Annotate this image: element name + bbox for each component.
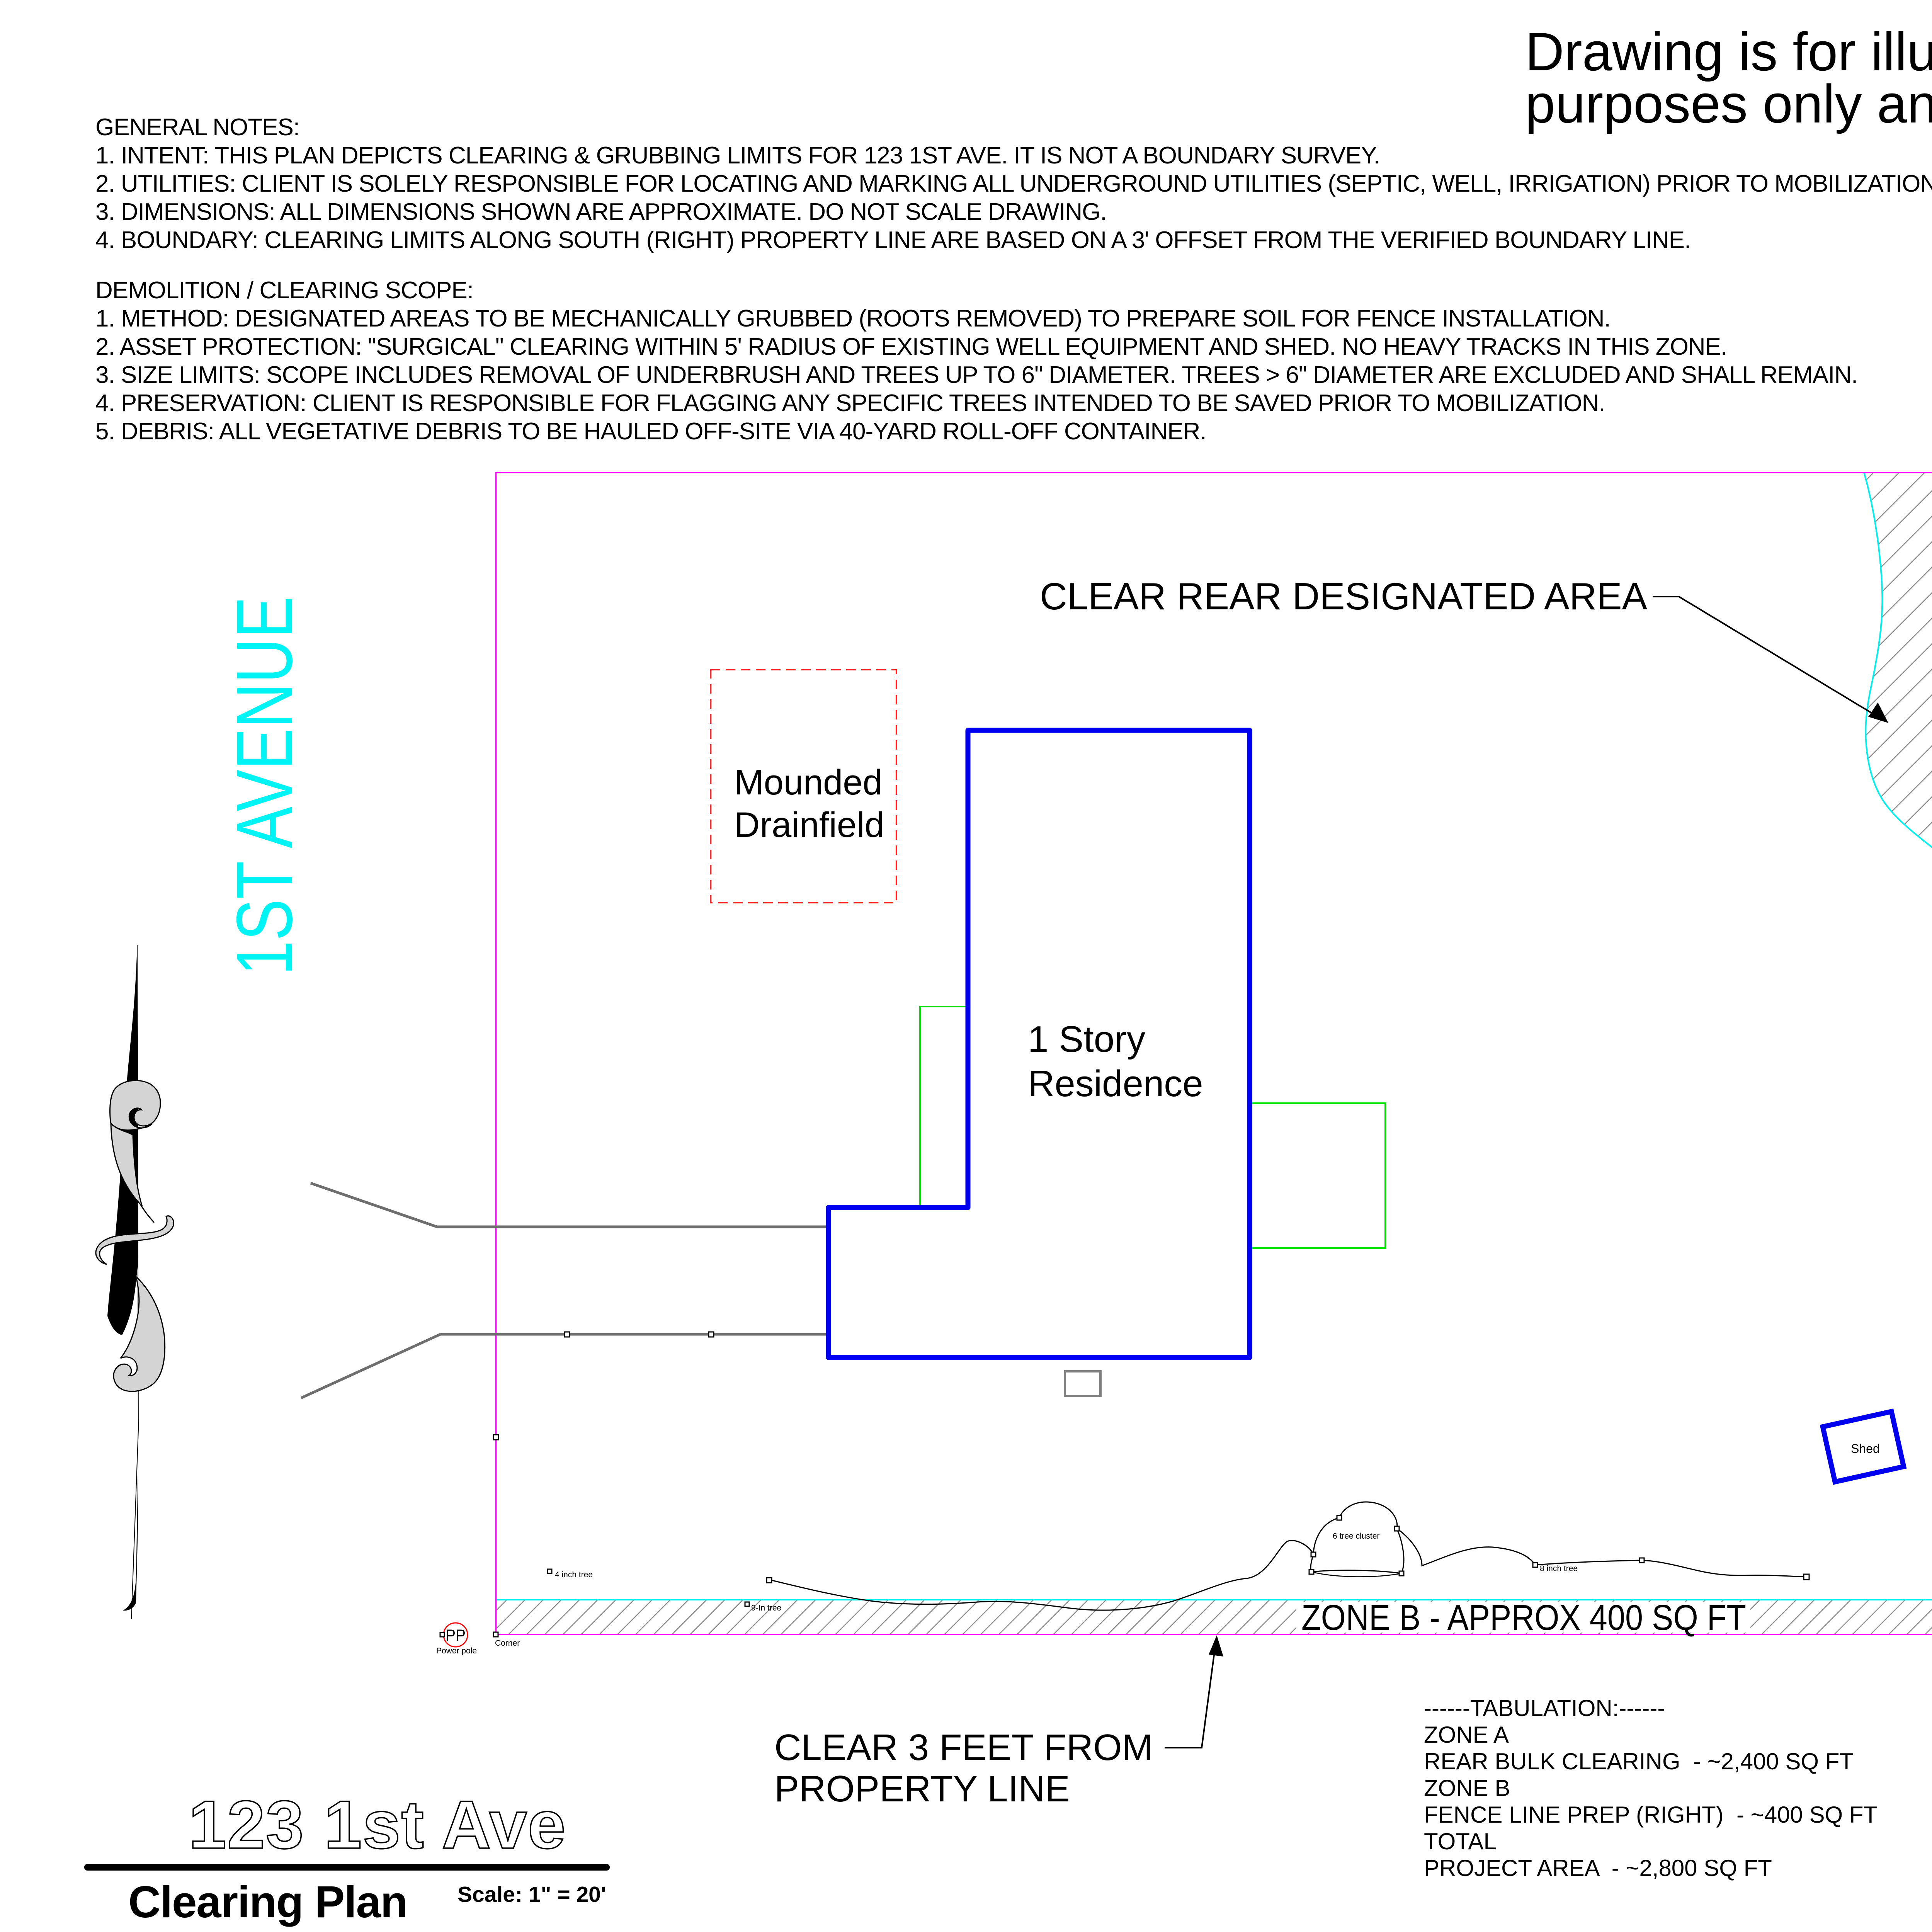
svg-text:Corner: Corner [495, 1639, 520, 1648]
svg-text:CLEAR 3 FEET FROM: CLEAR 3 FEET FROM [774, 1727, 1153, 1768]
svg-text:PROPERTY LINE: PROPERTY LINE [774, 1768, 1070, 1810]
svg-text:4 inch tree: 4 inch tree [555, 1570, 593, 1579]
svg-text:Scale: 1" = 20': Scale: 1" = 20' [457, 1882, 606, 1907]
svg-text:1ST AVENUE: 1ST AVENUE [220, 597, 309, 975]
svg-text:DEMOLITION / CLEARING SCOPE:: DEMOLITION / CLEARING SCOPE: [95, 277, 473, 304]
svg-text:PP: PP [446, 1626, 466, 1644]
svg-text:123 1st Ave: 123 1st Ave [189, 1787, 566, 1863]
svg-text:CLEAR REAR DESIGNATED AREA: CLEAR REAR DESIGNATED AREA [1040, 575, 1648, 617]
svg-text:Power pole: Power pole [436, 1646, 477, 1655]
svg-text:1. INTENT: THIS PLAN DEPICTS C: 1. INTENT: THIS PLAN DEPICTS CLEARING & … [95, 142, 1380, 169]
svg-text:ZONE A: ZONE A [1424, 1722, 1509, 1748]
svg-text:TOTAL: TOTAL [1424, 1828, 1497, 1854]
svg-text:PROJECT AREA - ~2,800 SQ FT: PROJECT AREA - ~2,800 SQ FT [1424, 1855, 1772, 1881]
svg-text:Clearing Plan: Clearing Plan [128, 1877, 407, 1927]
svg-text:9-In tree: 9-In tree [751, 1604, 781, 1612]
svg-text:1 Story: 1 Story [1028, 1019, 1145, 1060]
svg-text:REAR BULK CLEARING - ~2,400 S: REAR BULK CLEARING - ~2,400 SQ FT [1424, 1748, 1854, 1774]
svg-text:purposes only and is not a leg: purposes only and is not a legal survey. [1525, 73, 1932, 134]
svg-text:4. BOUNDARY: CLEARING LIMITS A: 4. BOUNDARY: CLEARING LIMITS ALONG SOUTH… [95, 227, 1690, 253]
svg-text:FENCE LINE PREP (RIGHT) - ~40: FENCE LINE PREP (RIGHT) - ~400 SQ FT [1424, 1802, 1878, 1828]
svg-text:Drawing is for illustrative an: Drawing is for illustrative and estimati… [1525, 21, 1932, 82]
svg-text:6 tree cluster: 6 tree cluster [1333, 1532, 1379, 1541]
svg-text:Residence: Residence [1028, 1063, 1203, 1104]
svg-text:Mounded: Mounded [734, 763, 883, 802]
svg-text:8 inch tree: 8 inch tree [1540, 1564, 1578, 1573]
svg-text:3. SIZE LIMITS: SCOPE INCLUDES: 3. SIZE LIMITS: SCOPE INCLUDES REMOVAL O… [95, 362, 1857, 388]
svg-text:GENERAL NOTES:: GENERAL NOTES: [95, 114, 299, 141]
svg-text:------TABULATION:------: ------TABULATION:------ [1424, 1695, 1665, 1721]
svg-text:ZONE B - APPROX 400 SQ FT: ZONE B - APPROX 400 SQ FT [1301, 1597, 1746, 1638]
svg-text:3. DIMENSIONS: ALL DIMENSIONS: 3. DIMENSIONS: ALL DIMENSIONS SHOWN ARE … [95, 199, 1107, 225]
svg-text:4. PRESERVATION: CLIENT IS RES: 4. PRESERVATION: CLIENT IS RESPONSIBLE F… [95, 390, 1605, 417]
svg-text:Shed: Shed [1851, 1442, 1880, 1456]
svg-text:Drainfield: Drainfield [734, 805, 884, 845]
svg-text:1. METHOD: DESIGNATED AREAS TO: 1. METHOD: DESIGNATED AREAS TO BE MECHAN… [95, 305, 1611, 332]
svg-text:2. UTILITIES: CLIENT IS SOLELY: 2. UTILITIES: CLIENT IS SOLELY RESPONSIB… [95, 170, 1932, 197]
svg-text:ZONE B: ZONE B [1424, 1775, 1510, 1801]
svg-text:5. DEBRIS: ALL VEGETATIVE DEBR: 5. DEBRIS: ALL VEGETATIVE DEBRIS TO BE H… [95, 418, 1206, 445]
svg-text:2. ASSET PROTECTION: "SURGICAL: 2. ASSET PROTECTION: "SURGICAL" CLEARING… [95, 333, 1727, 360]
